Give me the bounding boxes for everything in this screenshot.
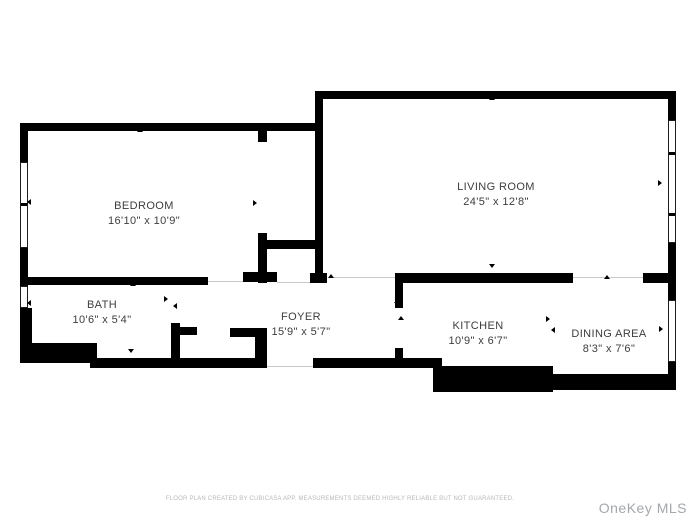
wall-segment <box>258 240 323 249</box>
measurement-tick-icon <box>489 264 495 268</box>
wall-segment <box>553 374 676 390</box>
watermark: OneKey MLS <box>599 500 687 516</box>
floor-plan-canvas: BEDROOM16'10" x 10'9"LIVING ROOM24'5" x … <box>0 0 693 520</box>
room-label-living-room: LIVING ROOM24'5" x 12'8" <box>411 180 581 210</box>
room-dimensions: 10'6" x 5'4" <box>17 313 187 328</box>
measurement-tick-icon <box>253 200 257 206</box>
room-name: FOYER <box>216 310 386 325</box>
measurement-tick-icon <box>604 375 610 379</box>
wall-segment <box>243 272 277 282</box>
wall-segment <box>668 243 676 300</box>
measurement-tick-icon <box>27 199 31 205</box>
wall-segment <box>20 123 323 131</box>
measurement-tick-icon <box>489 96 495 100</box>
door-opening-line <box>330 277 395 278</box>
measurement-tick-icon <box>319 182 323 188</box>
room-dimensions: 15'9" x 5'7" <box>216 325 386 340</box>
wall-segment <box>20 277 208 285</box>
window <box>20 162 28 248</box>
wall-segment <box>668 91 676 120</box>
measurement-tick-icon <box>492 366 498 370</box>
wall-segment <box>171 327 197 335</box>
measurement-tick-icon <box>604 275 610 279</box>
window <box>668 120 676 243</box>
measurement-tick-icon <box>658 180 662 186</box>
wall-segment <box>20 123 28 162</box>
room-label-foyer: FOYER15'9" x 5'7" <box>216 310 386 340</box>
measurement-tick-icon <box>328 274 334 278</box>
room-name: DINING AREA <box>524 327 693 342</box>
room-label-bath: BATH10'6" x 5'4" <box>17 298 187 328</box>
wall-segment <box>395 273 573 283</box>
room-name: BEDROOM <box>59 199 229 214</box>
wall-segment <box>258 131 267 142</box>
disclaimer-text: FLOOR PLAN CREATED BY CUBICASA APP. MEAS… <box>0 496 680 502</box>
room-label-bedroom: BEDROOM16'10" x 10'9" <box>59 199 229 229</box>
wall-segment <box>313 358 442 368</box>
wall-segment <box>395 348 403 364</box>
room-name: LIVING ROOM <box>411 180 581 195</box>
wall-segment <box>20 343 97 363</box>
room-label-dining-area: DINING AREA8'3" x 7'6" <box>524 327 693 357</box>
measurement-tick-icon <box>137 128 143 132</box>
measurement-tick-icon <box>128 349 134 353</box>
door-opening-line <box>208 281 243 282</box>
wall-segment <box>315 91 676 99</box>
room-dimensions: 24'5" x 12'8" <box>411 195 581 210</box>
door-opening-line <box>277 282 310 283</box>
room-name: BATH <box>17 298 187 313</box>
measurement-tick-icon <box>394 302 400 306</box>
measurement-tick-icon <box>130 282 136 286</box>
door-opening-line <box>267 366 313 367</box>
window-divider <box>669 213 675 216</box>
window-divider <box>669 152 675 155</box>
room-dimensions: 16'10" x 10'9" <box>59 214 229 229</box>
room-dimensions: 8'3" x 7'6" <box>524 342 693 357</box>
wall-segment <box>643 273 676 283</box>
wall-segment <box>668 362 676 390</box>
